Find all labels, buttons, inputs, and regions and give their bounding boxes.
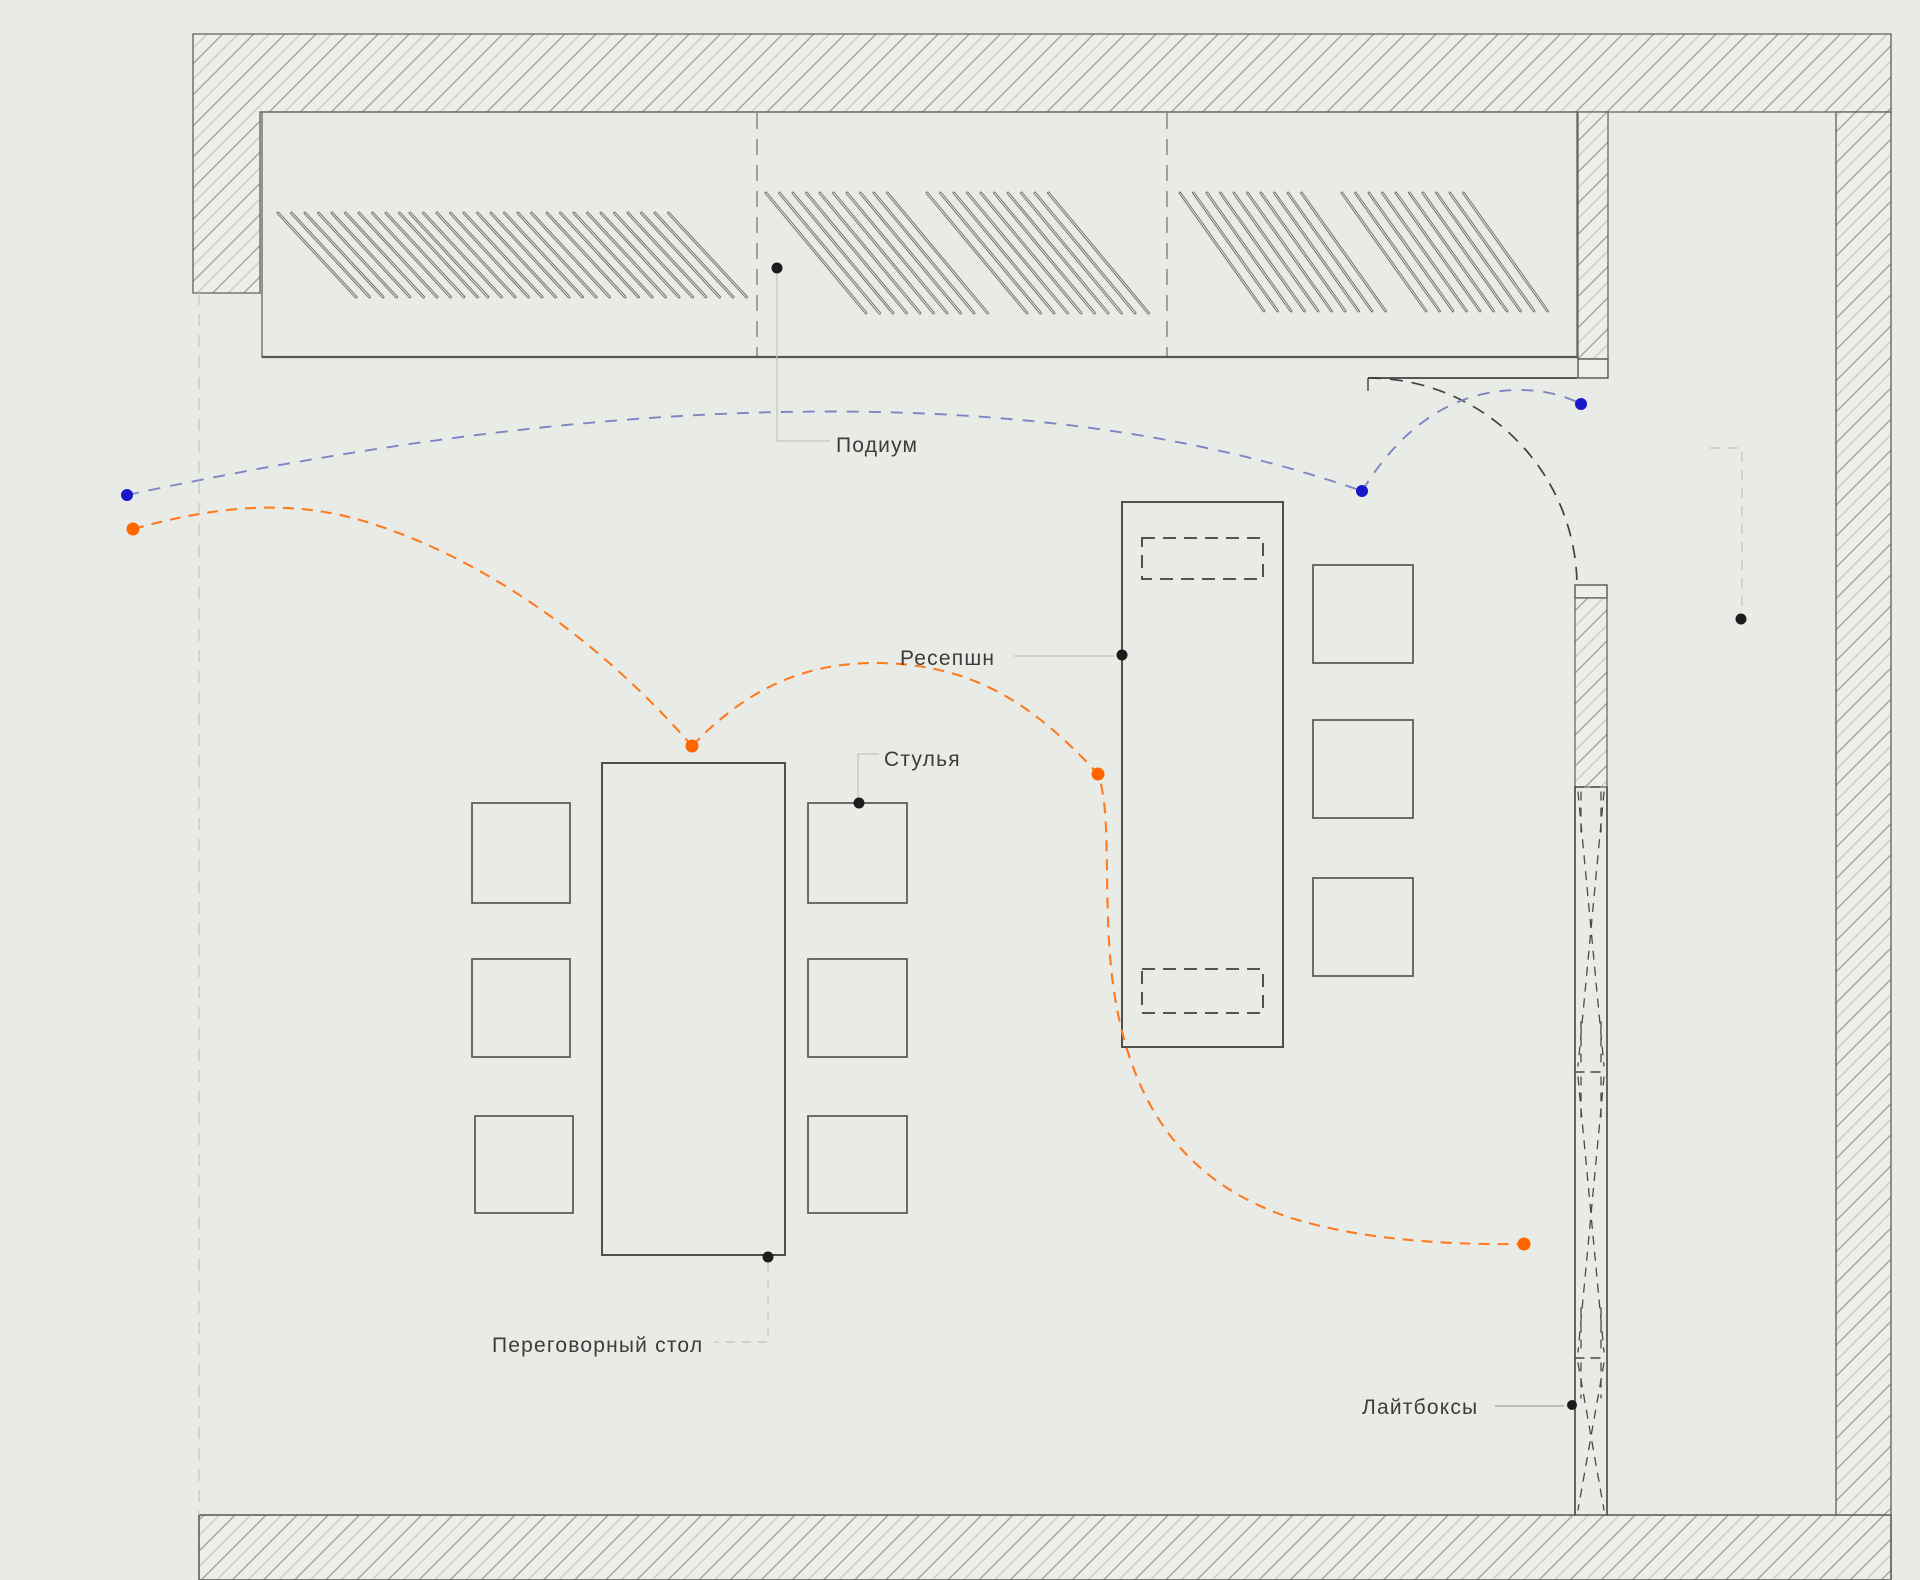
floor-plan-svg: Подиум Ресепшн Стулья Переговорный стол … — [0, 0, 1920, 1580]
door-jamb-upper-cap — [1578, 359, 1608, 378]
label-podium: Подиум — [836, 434, 918, 457]
marker-blue-mid — [1356, 485, 1368, 497]
label-meeting-table: Переговорный стол — [492, 1334, 703, 1357]
marker-black-podium — [772, 263, 783, 274]
marker-blue-end — [1575, 398, 1587, 410]
door-jamb-upper — [1578, 112, 1608, 359]
bottom-wall — [199, 1515, 1891, 1580]
marker-blue-start — [121, 489, 133, 501]
marker-black-chairs — [854, 798, 865, 809]
marker-orange-table — [686, 740, 699, 753]
label-reception: Ресепшн — [900, 647, 995, 670]
marker-black-lightboxes — [1567, 1400, 1577, 1410]
marker-black-table — [763, 1252, 774, 1263]
canvas-background — [0, 0, 1920, 1580]
marker-black-unlabeled — [1736, 614, 1747, 625]
label-lightboxes: Лайтбоксы — [1362, 1396, 1478, 1419]
marker-black-reception — [1117, 650, 1128, 661]
label-chairs: Стулья — [884, 748, 961, 771]
marker-orange-reception — [1092, 768, 1105, 781]
marker-orange-end — [1518, 1238, 1531, 1251]
right-wall — [1836, 112, 1891, 1580]
marker-orange-start — [127, 523, 140, 536]
door-jamb-lower — [1575, 598, 1607, 787]
floor-plan: Подиум Ресепшн Стулья Переговорный стол … — [0, 0, 1920, 1580]
door-jamb-lower-cap — [1575, 585, 1607, 598]
